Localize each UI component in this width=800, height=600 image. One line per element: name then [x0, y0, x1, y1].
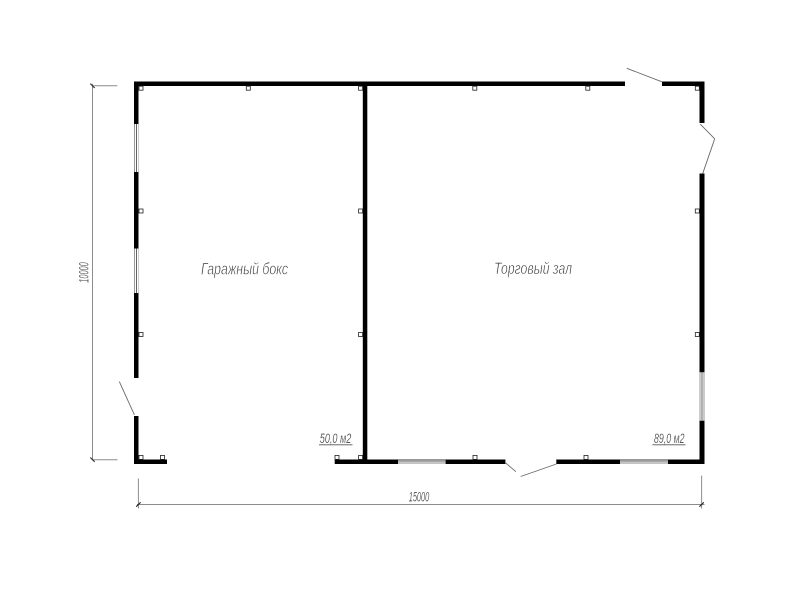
svg-text:15000: 15000 — [409, 490, 430, 506]
svg-text:10000: 10000 — [77, 262, 93, 283]
svg-text:Гаражный бокс: Гаражный бокс — [201, 260, 288, 279]
svg-text:89,0 м2: 89,0 м2 — [654, 431, 685, 446]
svg-text:Торговый зал: Торговый зал — [494, 259, 572, 278]
svg-text:50,0 м2: 50,0 м2 — [320, 431, 352, 446]
